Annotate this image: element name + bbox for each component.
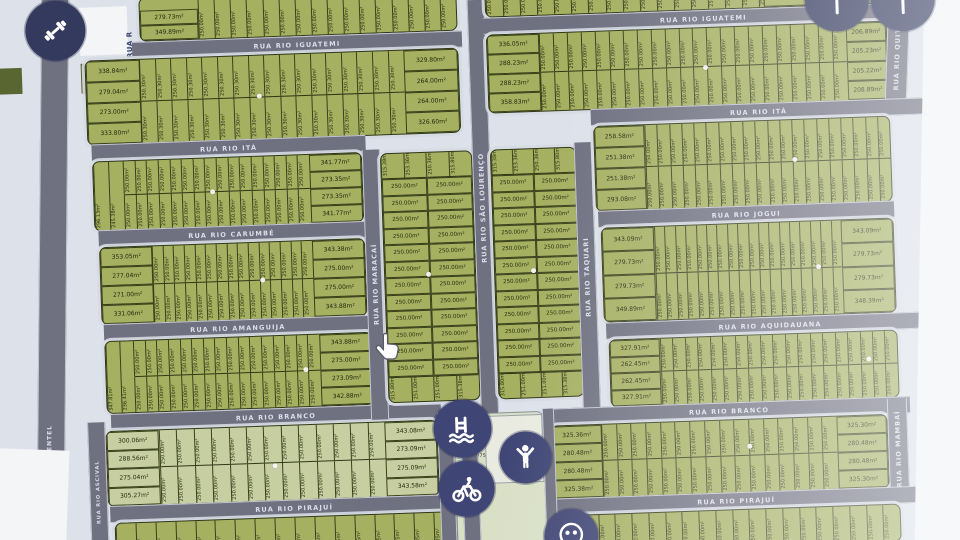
lot-cell: 250.00m² (719, 420, 735, 455)
street-label: RUA RIO TAQUARI (582, 237, 593, 317)
lot-area-label: 275.00m² (313, 277, 366, 298)
lot-cell: 250.30m² (170, 58, 187, 100)
lot-area-label: 315.38m² (381, 154, 404, 179)
lot-cell: 250.00m² (182, 193, 195, 227)
lot-area-label: 273.35m² (309, 170, 362, 189)
lot-cell: 250.00m² (665, 512, 683, 540)
lot-cell: 250.00m² (832, 506, 850, 540)
lot-cell: 250.00m² (342, 0, 360, 34)
lot-cell: 250.00m² (777, 64, 792, 102)
lot-cell: 250.00m² (816, 507, 834, 540)
street-label: RUA RIO BRANCO (236, 411, 316, 422)
lot-cell: 250.00m² (817, 161, 831, 203)
lot-area-label: 329.80m² (403, 49, 458, 72)
street-label: RUA RIO IGUATEMI (253, 39, 340, 50)
lot-cell: 250.00m² (766, 120, 780, 161)
lot-cell: 250.00m² (146, 160, 159, 193)
lot-cell: 250.30m² (296, 96, 313, 138)
lot-block[interactable]: 336.05m²288.23m²288.23m²358.83m² 206.89m… (486, 21, 890, 114)
lot-cell: 250.00m² (699, 511, 717, 540)
lot-area-label: 341.77m² (311, 204, 364, 223)
lot-cell: 250.35m² (334, 516, 355, 540)
lot-cell: 250.00m² (722, 336, 736, 368)
lot-cell: 250.00m² (428, 226, 474, 244)
lot-cell: 250.00m² (878, 159, 892, 201)
lot-area-label: 279.73m² (602, 250, 655, 275)
lot-area-label: 253.36m² (403, 153, 426, 178)
lot-cell: 250.00m² (152, 246, 164, 283)
lot-block[interactable]: 327.91m²262.45m²262.45m²327.91m² 250.00m… (609, 329, 900, 407)
lot-cell: 250.35m² (394, 513, 415, 540)
lot-cell: 250.00m² (177, 466, 196, 504)
lot-cell: 250.00m² (822, 333, 836, 365)
street-label: RUA RIO ITÁ (730, 107, 787, 117)
lot-cell: 250.00m² (650, 29, 665, 67)
lot-cell: 250.00m² (332, 424, 351, 461)
lot-cell: 250.00m² (539, 33, 554, 71)
lot-area-label: 341.77m² (309, 153, 362, 172)
lot-area-label: 343.58m² (386, 476, 439, 496)
lot-cell: 250.00m² (497, 322, 540, 340)
lot-cell: 250.00m² (430, 259, 476, 277)
lot-cell: 250.00m² (358, 0, 376, 33)
lot-cell: 250.00m² (571, 0, 589, 14)
lot-area-label: 251.00m² (520, 373, 542, 398)
lot-cell: 250.00m² (877, 117, 891, 158)
lot-area-label: 271.00m² (101, 284, 154, 305)
lot-cell: 250.00m² (609, 31, 624, 69)
lot-cell: 250.00m² (866, 505, 884, 540)
lot-cell: 250.00m² (423, 0, 441, 31)
lot-cell: 250.00m² (181, 159, 194, 192)
lot-cell: 250.00m² (805, 161, 819, 203)
lot-cell: 250.00m² (646, 423, 662, 458)
lot-cell: 250.00m² (433, 341, 479, 359)
lot-cell: 250.35m² (155, 522, 176, 540)
lot-cell: 250.00m² (615, 514, 633, 540)
lot-cell: 250.00m² (846, 332, 860, 364)
lot-cell: 250.00m² (675, 422, 691, 457)
lot-cell: 250.00m² (673, 371, 687, 404)
corner-lots: 300.06m²288.56m²275.04m²305.27m² (106, 430, 161, 506)
corner-lots: 336.05m²288.23m²288.23m²358.83m² (487, 34, 542, 113)
lot-cell: 250.00m² (734, 420, 750, 455)
lot-cell: 250.30m² (279, 54, 296, 96)
corner-lots: 315.38m²253.36m²250.36m²315.80m² (381, 151, 472, 179)
lot-cell: 250.00m² (496, 306, 539, 324)
lot-cell: 250.00m² (622, 30, 637, 68)
lot-cell: 250.00m² (299, 462, 318, 500)
lot-cell: 250.00m² (798, 367, 812, 400)
lot-cell: 250.00m² (230, 0, 248, 38)
lot-area-label: 333.80m² (88, 122, 143, 145)
gym-marker[interactable] (24, 0, 86, 62)
lot-cell: 250.00m² (263, 426, 282, 463)
lot-area-label: 336.05m² (487, 34, 540, 55)
lot-cell: 250.00m² (750, 455, 766, 491)
corner-lots: 343.09m²279.73m²279.73m²348.39m² (840, 219, 895, 314)
lot-cell: 250.00m² (797, 334, 811, 366)
lot-cell: 250.00m² (567, 32, 582, 70)
lot-area-label: 250.36m² (533, 148, 555, 173)
lot-area-label: 327.91m² (610, 339, 661, 357)
lot-cell: 250.00m² (860, 364, 874, 397)
lot-area-label: 251.00m² (411, 377, 434, 402)
lot-cell: 250.30m² (217, 57, 234, 99)
lot-cell: 250.00m² (808, 453, 824, 489)
lot-cell: 250.00m² (885, 363, 899, 396)
lot-cell: 250.00m² (430, 275, 476, 293)
lot-cell: 250.00m² (704, 421, 720, 456)
lot-cell: 250.00m² (227, 373, 240, 408)
lot-cell: 250.30m² (250, 97, 267, 139)
lot-cell: 250.00m² (756, 163, 770, 205)
lot-cell: 250.30m² (172, 100, 189, 142)
lot-cell: 250.00m² (805, 63, 820, 101)
lot-cell: 250.00m² (830, 220, 842, 266)
lot-cell: 250.35m² (116, 523, 137, 540)
lot-cell: 250.00m² (553, 33, 568, 71)
lot-area-label: 205.23m² (846, 41, 887, 62)
lot-area-label: 279.73m² (841, 242, 894, 267)
lot-cell: 250.00m² (639, 0, 657, 11)
lot-cell: 250.00m² (494, 240, 537, 258)
street-label: RUA RIO MAMBAÍ (893, 410, 904, 487)
lot-cell: 250.00m² (719, 164, 733, 206)
legend-box (79, 6, 129, 56)
lot-cell: 250.00m² (375, 0, 393, 32)
lot-cell: 250.00m² (768, 162, 782, 204)
lot-area-label: 288.56m² (107, 449, 160, 469)
lot-cell: 250.00m² (656, 0, 674, 11)
street-label: RUA RIO PIRAJUÍ (697, 495, 775, 506)
lot-cell: 250.00m² (833, 62, 848, 100)
lot-cell: 250.00m² (431, 292, 477, 310)
corner-lots: 347.81m²236.41m² (105, 341, 135, 413)
corner-lots: 296.13m²245.38m² (93, 161, 125, 230)
lot-cell: 250.00m² (297, 155, 310, 188)
lot-cell: 250.00m² (849, 506, 867, 540)
lot-cell: 250.00m² (439, 0, 457, 30)
lot-area-label: 262.45m² (611, 372, 662, 390)
corner-lots: 279.73m²349.89m² (140, 9, 199, 41)
street-label: RUA RIO AMANGUIJA (190, 322, 286, 333)
lot-cell: 250.00m² (536, 0, 554, 15)
lot-cell: 250.00m² (309, 371, 322, 406)
lot-cell: 250.00m² (540, 72, 555, 110)
lot-block[interactable]: 258.58m²251.38m²251.38m²293.08m² 250.00m… (593, 116, 893, 212)
lot-cell: 250.35m² (414, 513, 435, 540)
lot-area-label: 293.08m² (596, 188, 647, 211)
lot-cell: 250.00m² (848, 365, 862, 398)
lot-cell: 250.00m² (773, 367, 787, 400)
lot-cell: 250.00m² (211, 428, 230, 465)
lot-cell: 250.30m² (389, 93, 406, 135)
corner-lots: 258.58m²251.38m²251.38m²293.08m² (594, 125, 647, 211)
lot-cell: 250.00m² (194, 465, 213, 503)
lot-cell: 250.00m² (184, 245, 196, 282)
lot-cell: 250.00m² (534, 173, 577, 191)
lot-cell: 250.00m² (239, 157, 252, 190)
lot-strip: 250.30m²250.30m²250.30m²250.30m²250.30m²… (141, 93, 406, 143)
lot-cell: 250.30m² (326, 53, 343, 95)
lot-cell: 250.00m² (581, 32, 596, 70)
lot-area-label: 273.35m² (310, 187, 363, 206)
corner-lots: 343.09m²279.73m²279.73m²349.89m² (602, 227, 657, 322)
lot-cell: 250.00m² (682, 512, 700, 540)
lot-cell: 250.30m² (327, 95, 344, 137)
lot-cell: 250.00m² (431, 308, 477, 326)
lot-cell: 250.00m² (747, 335, 761, 367)
lot-cell: 250.00m² (262, 0, 280, 36)
lot-cell: 250.00m² (135, 377, 148, 412)
lot-cell: 250.00m² (493, 224, 536, 242)
lot-area-label: 315.80m² (499, 374, 521, 399)
lot-area-label: 325.30m² (838, 469, 889, 489)
lot-cell: 250.00m² (433, 358, 479, 376)
lot-cell: 250.00m² (622, 0, 640, 12)
lot-area-label: 325.30m² (836, 415, 887, 435)
lot-cell: 250.30m² (265, 97, 282, 139)
lot-cell: 250.00m² (492, 191, 535, 209)
lot-cell: 250.00m² (212, 465, 231, 503)
lot-cell: 250.00m² (539, 321, 582, 339)
lot-cell: 250.00m² (350, 423, 369, 460)
lot-cell: 250.00m² (251, 157, 264, 190)
lot-cell: 250.30m² (358, 94, 375, 136)
lot-block[interactable]: 347.81m²236.41m² 343.88m²275.00m²273.09m… (104, 332, 374, 414)
lot-cell: 250.00m² (554, 72, 569, 110)
lot-cell: 250.00m² (804, 24, 819, 62)
lot-cell: 250.00m² (428, 209, 474, 227)
paper-margin-right (915, 0, 960, 540)
lot-cell: 250.00m² (741, 0, 759, 8)
lot-area-label: 325.38m² (553, 479, 604, 499)
lot-area-label: 279.73m² (603, 273, 656, 298)
lot-cell: 250.00m² (690, 0, 708, 9)
lot-cell: 250.00m² (303, 279, 315, 317)
lot-cell: 250.00m² (213, 0, 231, 38)
lot-strip: 250.00m²250.00m²250.00m²250.00m²250.00m²… (655, 267, 843, 319)
lot-cell: 250.35m² (354, 515, 375, 540)
lot-cell: 250.00m² (251, 373, 264, 408)
lot-cell: 250.00m² (193, 429, 212, 466)
lot-cell: 250.00m² (601, 424, 617, 459)
lot-cell: 250.00m² (763, 419, 779, 454)
corner-lots: 343.88m²275.00m²273.09m²342.88m² (319, 333, 373, 406)
lot-cell: 250.00m² (216, 244, 228, 281)
corner-lots: 206.89m²205.23m²205.22m²208.89m² (846, 22, 889, 100)
street-label: RUA RIO PIRAJUÍ (255, 503, 333, 514)
lot-cell: 250.00m² (496, 289, 539, 307)
lot-cell: 250.00m² (735, 456, 751, 492)
lot-cell: 250.00m² (245, 427, 264, 464)
lot-cell: 250.00m² (698, 370, 712, 403)
lot-cell: 250.00m² (632, 513, 650, 540)
map-canvas: RUA R 279.73m²349.89m² 250.00m²250.00m²2… (0, 0, 960, 540)
lot-cell: 250.00m² (537, 255, 580, 273)
lot-cell: 250.00m² (538, 288, 581, 306)
lot-cell: 250.00m² (240, 191, 253, 225)
lot-area-label: 280.48m² (552, 443, 603, 463)
lot-cell: 250.35m² (136, 522, 157, 540)
lot-area-label: 273.09m² (385, 439, 438, 459)
street-label: RUA RIO MARACAÍ (370, 244, 381, 326)
lot-area-label: 275.00m² (313, 258, 366, 279)
lot-cell: 250.00m² (535, 222, 578, 240)
lot-area-label: 353.05m² (100, 246, 153, 267)
lot-cell: 250.00m² (835, 365, 849, 398)
lot-cell: 250.00m² (832, 267, 844, 313)
lot-cell: 250.00m² (776, 25, 791, 63)
lot-cell: 250.00m² (498, 355, 541, 373)
lot-cell: 250.30m² (264, 55, 281, 97)
lot-cell: 250.00m² (158, 430, 177, 467)
person-arms-up-icon (510, 442, 541, 473)
lot-cell: 250.30m² (357, 52, 374, 94)
lot-area-label: 343.09m² (602, 227, 655, 252)
lot-area-label: 300.06m² (106, 430, 159, 450)
lot-cell: 250.00m² (647, 459, 663, 495)
lot-cell: 250.00m² (382, 178, 428, 196)
lot-cell: 250.00m² (778, 418, 794, 453)
lot-cell: 250.00m² (866, 159, 880, 201)
lot-cell: 250.00m² (153, 284, 165, 322)
lot-area-label: 315.80m² (389, 377, 412, 402)
lot-cell: 250.00m² (718, 122, 732, 163)
corner-lots: 327.91m²262.45m²262.45m²327.91m² (610, 339, 662, 407)
street-label: RUA RIO CARUMBÉ (188, 229, 275, 240)
lot-cell: 250.00m² (216, 158, 229, 191)
lot-cell: 250.00m² (883, 505, 901, 540)
lot-cell: 250.00m² (715, 510, 733, 540)
corner-lots: 325.36m²280.48m²280.48m²325.38m² (552, 425, 604, 499)
lot-area-label: 279.73m² (842, 265, 895, 290)
street-label: RUA RIO JOGUI (712, 209, 781, 219)
lot-cell: 250.00m² (310, 0, 328, 35)
lot-area-label: 348.39m² (843, 288, 896, 313)
lot-cell: 250.00m² (732, 510, 750, 540)
lot-cell: 250.00m² (246, 0, 264, 37)
lot-cell: 250.30m² (141, 101, 158, 143)
lot-cell: 250.00m² (834, 332, 848, 364)
lot-cell: 250.00m² (823, 366, 837, 399)
corner-lots: 338.84m²279.04m²273.00m²333.80m² (85, 60, 142, 145)
lot-cell: 250.00m² (852, 117, 866, 158)
lot-area-label: 288.23m² (487, 53, 540, 74)
lot-area-label: 315.38m² (456, 375, 479, 400)
corner-lots: 325.30m²280.48m²280.48m²325.30m² (836, 415, 888, 489)
lot-block[interactable]: 315.38m²253.36m²250.36m²315.80m² 250.00m… (380, 150, 481, 403)
lot-area-label: 205.22m² (847, 60, 888, 81)
lot-cell: 250.00m² (553, 0, 571, 14)
lot-cell: 250.30m² (219, 98, 236, 140)
lot-cell: 250.00m² (264, 463, 283, 501)
lot-cell: 250.00m² (656, 124, 670, 165)
lot-cell: 250.00m² (670, 166, 684, 208)
lot-cell: 250.00m² (666, 68, 681, 106)
corner-lots: 315.80m²251.00m²251.00m²315.38m² (499, 370, 584, 398)
lot-cell: 250.35m² (215, 520, 236, 540)
lot-cell: 250.35m² (275, 518, 296, 540)
lot-cell: 250.35m² (175, 521, 196, 540)
lot-block[interactable]: 343.09m²279.73m²279.73m²349.89m² 343.09m… (601, 218, 897, 323)
lot-cell: 250.00m² (274, 156, 287, 189)
corner-lots: 315.38m²253.36m²250.36m²315.80m² (491, 148, 576, 176)
corner-lots: 353.05m²277.04m²271.00m²331.06m² (100, 246, 155, 324)
lot-cell: 250.00m² (791, 64, 806, 102)
lot-cell: 250.00m² (723, 369, 737, 402)
lot-area-label: 280.48m² (838, 451, 889, 471)
lot-cell: 250.00m² (176, 429, 195, 466)
lot-area-label: 326.60m² (405, 111, 460, 134)
lot-block[interactable]: 315.38m²253.36m²250.36m²315.80m² 250.00m… (490, 147, 585, 400)
paper-margin-bottom-left (0, 447, 69, 540)
lot-cell: 250.00m² (502, 0, 520, 16)
lot-cell: 250.00m² (588, 0, 606, 13)
hand-cursor (372, 332, 402, 364)
lot-block[interactable]: 325.36m²280.48m²280.48m²325.38m² 325.30m… (550, 414, 889, 500)
lot-cell: 250.00m² (822, 417, 838, 452)
lot-area-label: 315.80m² (448, 151, 471, 176)
lot-cell: 250.00m² (705, 123, 719, 164)
lot-cell: 250.00m² (707, 0, 725, 9)
lot-block[interactable]: 296.13m²245.38m² 341.77m²273.35m²273.35m… (92, 152, 364, 231)
lot-cell: 250.00m² (298, 189, 311, 223)
lot-cell: 250.30m² (374, 93, 391, 135)
lot-area-label: 343.88m² (319, 333, 372, 353)
lot-area-label: 251.00m² (541, 372, 563, 397)
green-patch (0, 68, 23, 95)
lot-area-label: 277.04m² (101, 265, 154, 286)
corner-lots: 341.77m²273.35m²273.35m²341.77m² (309, 153, 363, 223)
lot-cell: 250.00m² (691, 457, 707, 493)
lot-cell: 250.00m² (367, 422, 386, 459)
lot-cell: 250.00m² (603, 460, 619, 496)
lot-cell: 250.00m² (351, 460, 370, 498)
lot-area-label: 315.38m² (491, 150, 513, 175)
lot-cell: 250.00m² (315, 424, 334, 461)
lot-cell: 250.35m² (314, 516, 335, 540)
lot-cell: 250.00m² (247, 464, 266, 502)
lot-block[interactable]: 338.84m²279.04m²273.00m²333.80m² 329.80m… (84, 48, 461, 146)
street-label: RUA RIO AQUIDAUANA (718, 320, 821, 332)
lot-cell: 250.00m² (724, 0, 742, 8)
lot-cell: 250.00m² (286, 371, 299, 406)
lot-cell: 250.00m² (197, 0, 215, 39)
lot-cell: 250.30m² (187, 100, 204, 142)
lot-cell: 250.00m² (632, 459, 648, 495)
lot-area-label: 305.27m² (108, 486, 161, 506)
lot-cell: 250.00m² (673, 0, 691, 10)
lot-cell: 250.00m² (262, 372, 275, 407)
lot-cell: 250.00m² (669, 124, 683, 165)
lot-grid: 250.00m²250.00m²250.00m²250.00m²250.00m²… (492, 173, 583, 374)
lot-cell: 250.00m² (672, 338, 686, 370)
lot-strip: 250.00m²250.00m²250.00m²250.00m²250.00m²… (135, 371, 322, 412)
lot-cell: 250.00m² (534, 189, 577, 207)
lot-cell: 250.00m² (519, 0, 537, 15)
lot-area-label: 342.88m² (321, 386, 374, 406)
lot-cell: 250.00m² (228, 427, 247, 464)
lot-cell: 250.00m² (159, 194, 172, 228)
lot-cell: 250.00m² (790, 25, 805, 63)
lot-area-label: 280.48m² (837, 433, 888, 453)
lot-cell: 250.00m² (168, 340, 181, 375)
lot-area-label: 262.45m² (610, 355, 661, 373)
lot-block[interactable]: 353.05m²277.04m²271.00m²331.06m² 343.38m… (99, 238, 368, 325)
lot-area-label: 331.06m² (102, 303, 155, 324)
